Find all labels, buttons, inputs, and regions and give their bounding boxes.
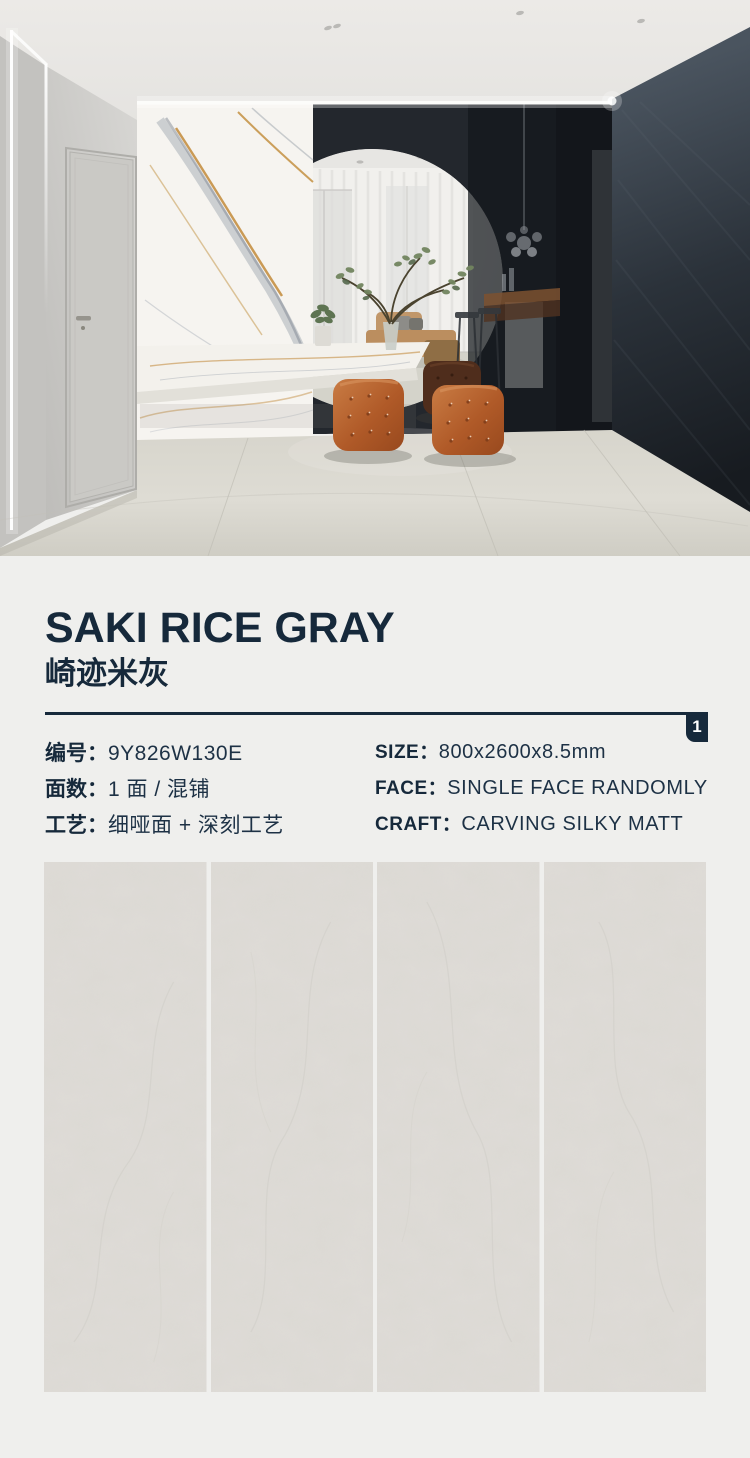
spec-label: 编号： (45, 737, 108, 767)
spec-row-craft-en: CRAFT： CARVING SILKY MATT (375, 809, 708, 833)
hero-scene-illustration (0, 0, 750, 556)
product-title-en: SAKI RICE GRAY (45, 604, 395, 652)
spec-label: 工艺： (45, 809, 108, 839)
spec-label: FACE： (375, 773, 447, 800)
tile-panel-3 (377, 862, 540, 1392)
spec-row-craft-zh: 工艺： 细哑面 + 深刻工艺 (45, 809, 284, 833)
spec-value: 9Y826W130E (108, 742, 243, 766)
spec-row-faces: 面数： 1 面 / 混铺 (45, 773, 284, 797)
led-corner-highlight (45, 64, 48, 314)
spec-label: CRAFT： (375, 809, 461, 836)
tile-panel-1 (44, 862, 207, 1392)
door-handle (76, 316, 91, 321)
spec-value: 1 面 / 混铺 (108, 773, 210, 803)
stool-orange-left (333, 379, 404, 451)
hero-photo (0, 0, 750, 556)
spec-value: SINGLE FACE RANDOMLY (447, 777, 708, 800)
spec-value: CARVING SILKY MATT (461, 813, 683, 836)
door (66, 148, 136, 507)
ceiling-led-strip (137, 96, 613, 108)
spec-row-size: SIZE： 800x2600x8.5mm (375, 737, 708, 761)
product-title-zh: 崎迹米灰 (45, 656, 169, 692)
tile-panel-4 (544, 862, 707, 1392)
stool-orange-right (432, 385, 504, 455)
spec-column-english: SIZE： 800x2600x8.5mm FACE： SINGLE FACE R… (375, 737, 708, 845)
spec-row-face: FACE： SINGLE FACE RANDOMLY (375, 773, 708, 797)
spec-column-chinese: 编号： 9Y826W130E 面数： 1 面 / 混铺 工艺： 细哑面 + 深刻… (45, 737, 284, 845)
spec-label: SIZE： (375, 737, 439, 764)
led-strip-vertical (10, 30, 13, 530)
tile-swatches (44, 862, 706, 1392)
tile-panel-2 (211, 862, 374, 1392)
divider-line (45, 712, 686, 715)
spec-value: 800x2600x8.5mm (439, 741, 606, 764)
spec-row-code: 编号： 9Y826W130E (45, 737, 284, 761)
spec-value: 细哑面 + 深刻工艺 (108, 809, 284, 839)
spec-label: 面数： (45, 773, 108, 803)
